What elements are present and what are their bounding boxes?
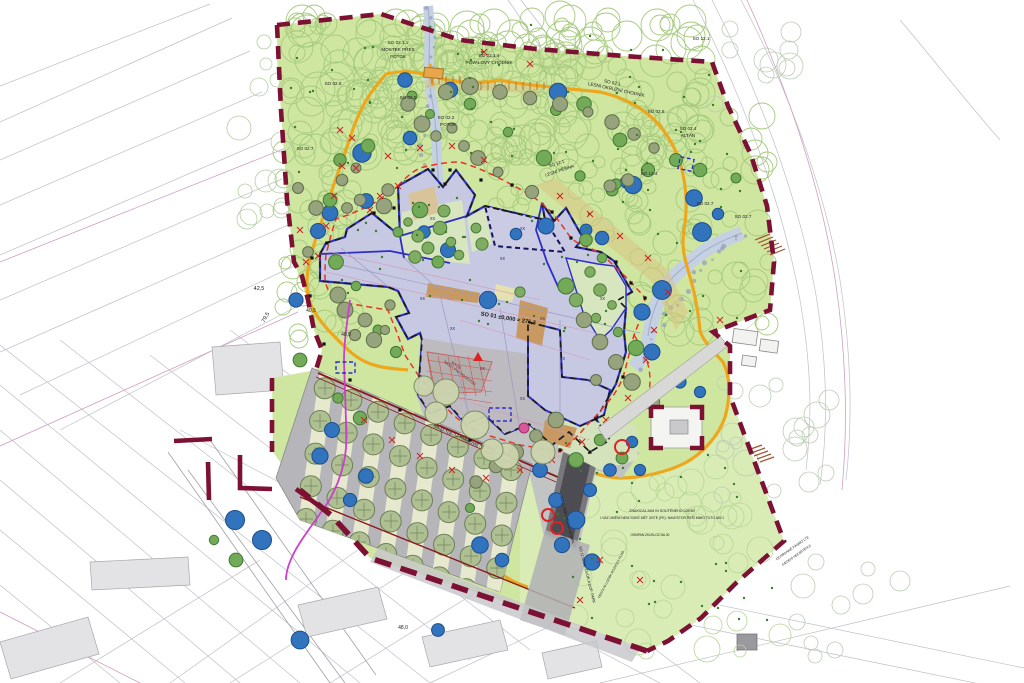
svg-text:xx: xx xyxy=(520,226,526,232)
svg-text:48,0: 48,0 xyxy=(341,332,351,338)
svg-text:ZNAKICALJUM IN SOUTĚNÉHO ÚZEMÍ: ZNAKICALJUM IN SOUTĚNÉHO ÚZEMÍ xyxy=(629,508,695,513)
svg-text:SO 02.8: SO 02.8 xyxy=(648,109,665,114)
svg-text:xx: xx xyxy=(540,316,546,322)
svg-text:SO 02.7: SO 02.7 xyxy=(735,214,752,219)
svg-text:xx: xx xyxy=(520,396,526,402)
svg-text:xx: xx xyxy=(500,256,506,262)
svg-text:SO 12.4: SO 12.4 xyxy=(641,171,658,176)
svg-text:SO 02.1.1: SO 02.1.1 xyxy=(388,40,409,45)
svg-text:SO 02.7: SO 02.7 xyxy=(697,201,714,206)
svg-text:xx: xx xyxy=(450,326,456,332)
svg-text:SO 02.4: SO 02.4 xyxy=(680,126,697,131)
svg-text:SO 02.1.4: SO 02.1.4 xyxy=(479,53,500,58)
svg-text:SO 02.5: SO 02.5 xyxy=(400,95,417,100)
svg-text:SO 02.7: SO 02.7 xyxy=(297,146,314,151)
svg-text:xx: xx xyxy=(430,216,436,222)
svg-text:POVALOVÝ CHODNÍK: POVALOVÝ CHODNÍK xyxy=(465,59,513,65)
svg-text:POTOK: POTOK xyxy=(440,122,457,127)
svg-text:42,5: 42,5 xyxy=(254,286,265,292)
svg-text:MOSTEK PŘES: MOSTEK PŘES xyxy=(381,45,414,52)
svg-text:POTOK: POTOK xyxy=(390,54,407,59)
svg-text:SO 12.1: SO 12.1 xyxy=(693,36,710,41)
svg-text:xx: xx xyxy=(600,296,606,302)
svg-text:48,0: 48,0 xyxy=(398,625,408,631)
svg-text:xx: xx xyxy=(560,356,566,362)
svg-text:SO 02.8: SO 02.8 xyxy=(325,81,342,86)
svg-text:ALTÁN: ALTÁN xyxy=(681,132,695,138)
svg-text:40,5: 40,5 xyxy=(306,308,316,314)
svg-text:I.VAZ UMĚNÍ NENÍ SOKÉ MĚT JIST: I.VAZ UMĚNÍ NENÍ SOKÉ MĚT JISTÉ (PE). NA… xyxy=(600,515,723,520)
svg-text:OSMPAN.ZKUSLOZ.NA.30: OSMPAN.ZKUSLOZ.NA.30 xyxy=(631,533,670,537)
svg-text:xx: xx xyxy=(420,296,426,302)
svg-text:xx: xx xyxy=(480,366,486,372)
svg-text:SO 02.2: SO 02.2 xyxy=(438,115,455,120)
